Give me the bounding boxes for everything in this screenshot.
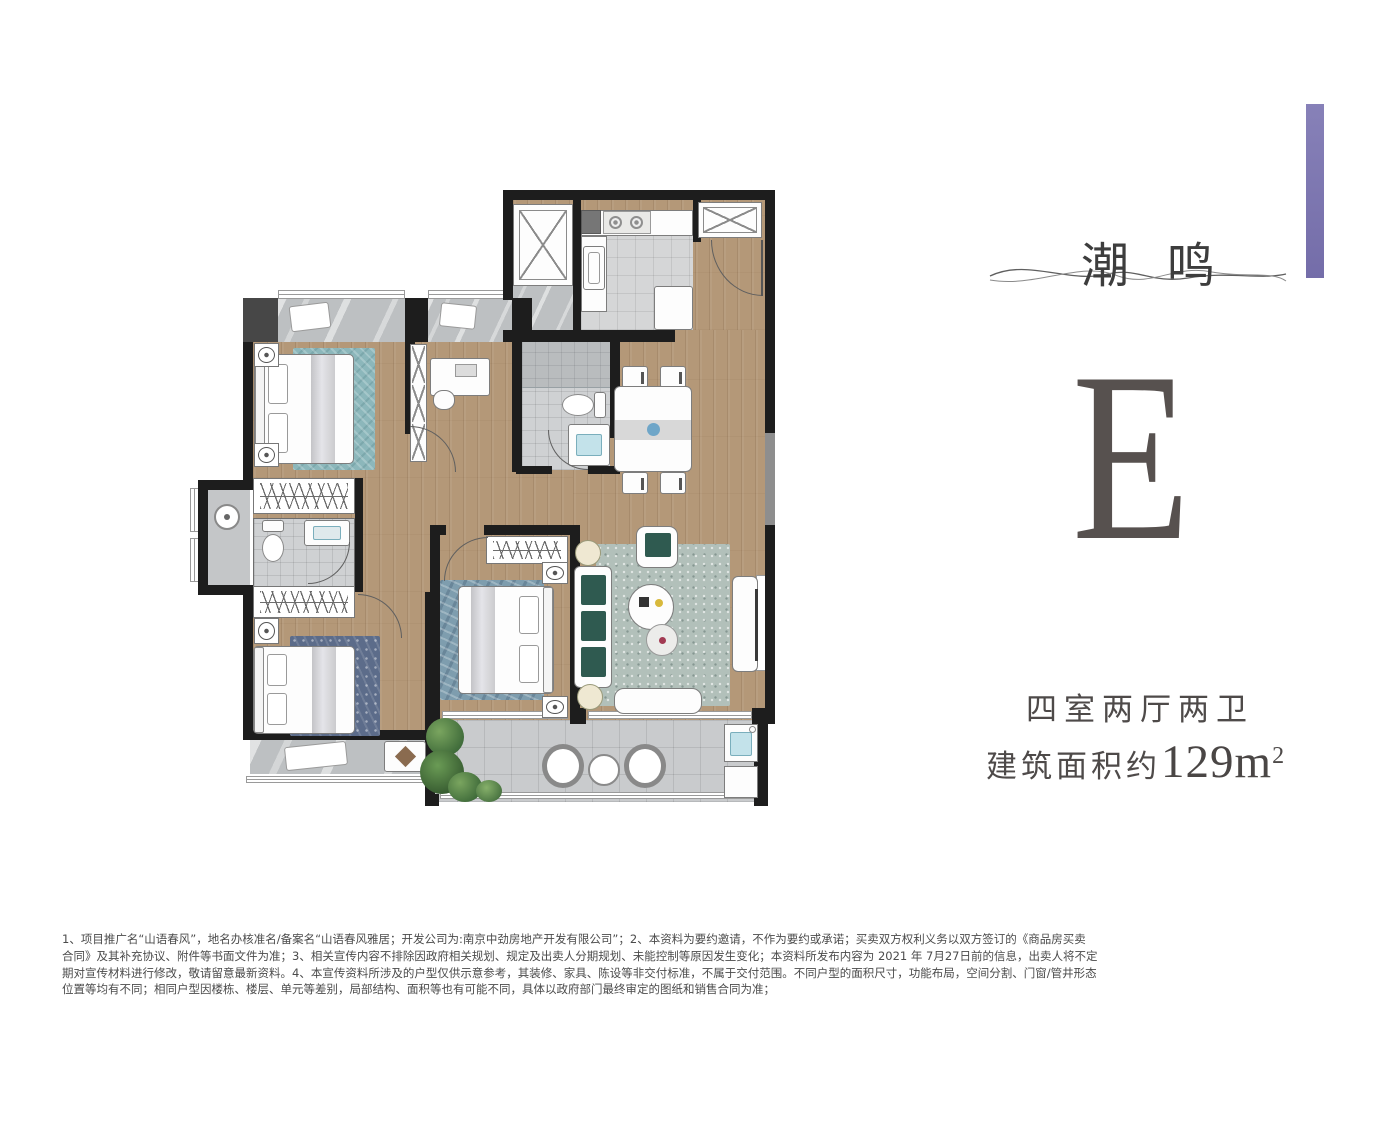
nightstand	[542, 562, 568, 584]
disclaimer-line: 期对宣传材料进行修改，敬请留意最新资料。4、本宣传资料所涉及的户型仅供示意参考，…	[62, 965, 1356, 982]
armchair	[636, 526, 678, 568]
dining-table	[614, 386, 692, 472]
wall-segment	[512, 298, 532, 342]
duct-shaft	[698, 202, 762, 238]
disclaimer-line: 合同》及其补充协议、附件等书面文件为准；3、相关宣传内容不排除因政府相关规划、规…	[62, 948, 1356, 965]
wall-segment	[573, 200, 581, 342]
bed	[253, 646, 355, 734]
bay-pillow	[289, 302, 332, 333]
desk-chair	[433, 390, 455, 410]
sofa	[574, 566, 612, 688]
nightstand	[254, 443, 279, 467]
unit-layout-text: 四室两厅两卫	[1026, 684, 1254, 729]
nightstand	[254, 618, 279, 644]
dining-chair	[660, 472, 686, 494]
wall-corner	[243, 298, 278, 342]
window	[278, 290, 405, 299]
wall-segment	[503, 190, 775, 200]
logo-char: 鸣	[1167, 226, 1215, 296]
area-value: 129m	[1161, 735, 1272, 789]
wardrobe	[486, 536, 568, 564]
floor-plan-page: { "brand": { "logo_char_1": "潮", "logo_c…	[0, 0, 1400, 1121]
shower-zone	[522, 342, 610, 388]
accent-bar	[1306, 104, 1324, 278]
balcony-chair	[624, 744, 666, 788]
kitchen-sink-drainer	[581, 210, 601, 234]
wall-segment	[430, 530, 440, 722]
toilet-icon	[562, 394, 594, 416]
balcony-chair	[542, 744, 584, 788]
side-table	[577, 684, 603, 710]
plant	[476, 780, 502, 802]
unit-letter: E	[1072, 336, 1190, 578]
tv-console	[732, 576, 758, 672]
wall-segment	[243, 342, 253, 490]
shower-niche-floor	[208, 488, 250, 588]
stove-icon	[603, 211, 651, 234]
brand-logo: 潮 鸣	[988, 226, 1308, 296]
area-prefix: 建筑面积约	[986, 741, 1161, 786]
unit-area-text: 建筑面积约 129m 2	[986, 735, 1284, 789]
bed	[458, 586, 554, 694]
shower-icon	[214, 504, 240, 530]
logo-char: 潮	[1081, 226, 1129, 296]
wall-segment	[512, 342, 522, 472]
toilet-tank	[594, 392, 606, 418]
coffee-table	[628, 584, 674, 630]
wall-segment	[484, 525, 580, 535]
dining-chair	[622, 472, 648, 494]
window	[428, 290, 512, 299]
area-superscript: 2	[1272, 743, 1284, 770]
wall-pier	[752, 708, 768, 724]
wardrobe	[253, 478, 355, 514]
disclaimer-line: 位置等均有不同；相同户型因楼栋、楼层、单元等差别，局部结构、面积等也有可能不同，…	[62, 981, 1356, 998]
nightstand	[254, 343, 279, 367]
wardrobe	[253, 586, 355, 618]
wall-segment	[355, 478, 363, 592]
wall-segment	[405, 298, 428, 342]
wall-segment	[198, 480, 208, 595]
wall-window-pier	[765, 433, 775, 525]
wall-segment	[516, 466, 552, 474]
kitchen-sink-icon	[583, 246, 605, 290]
fridge	[654, 286, 693, 330]
wall-segment	[243, 588, 253, 738]
laundry-sink	[724, 724, 758, 762]
side-table	[575, 540, 601, 566]
ottoman	[614, 688, 702, 714]
door-leaf	[761, 240, 763, 296]
coffee-table-small	[646, 624, 678, 656]
floor-plan	[190, 190, 790, 815]
disclaimer: 1、项目推广名“山语春风”，地名办核准名/备案名“山语春风雅居；开发公司为:南京…	[62, 931, 1356, 998]
bay-pillow	[439, 302, 477, 330]
balcony-table	[588, 754, 620, 786]
dining-chair	[622, 366, 648, 388]
dining-chair	[660, 366, 686, 388]
toilet-icon	[262, 534, 284, 562]
elevator-shaft	[513, 204, 573, 286]
window	[246, 776, 428, 783]
wall-pier	[425, 794, 439, 806]
toilet-tank	[262, 520, 284, 532]
disclaimer-line: 1、项目推广名“山语春风”，地名办核准名/备案名“山语春风雅居；开发公司为:南京…	[62, 931, 1356, 948]
nightstand	[542, 696, 568, 718]
wall-pier	[570, 708, 586, 724]
wall-segment	[503, 200, 513, 300]
washer	[724, 766, 758, 798]
